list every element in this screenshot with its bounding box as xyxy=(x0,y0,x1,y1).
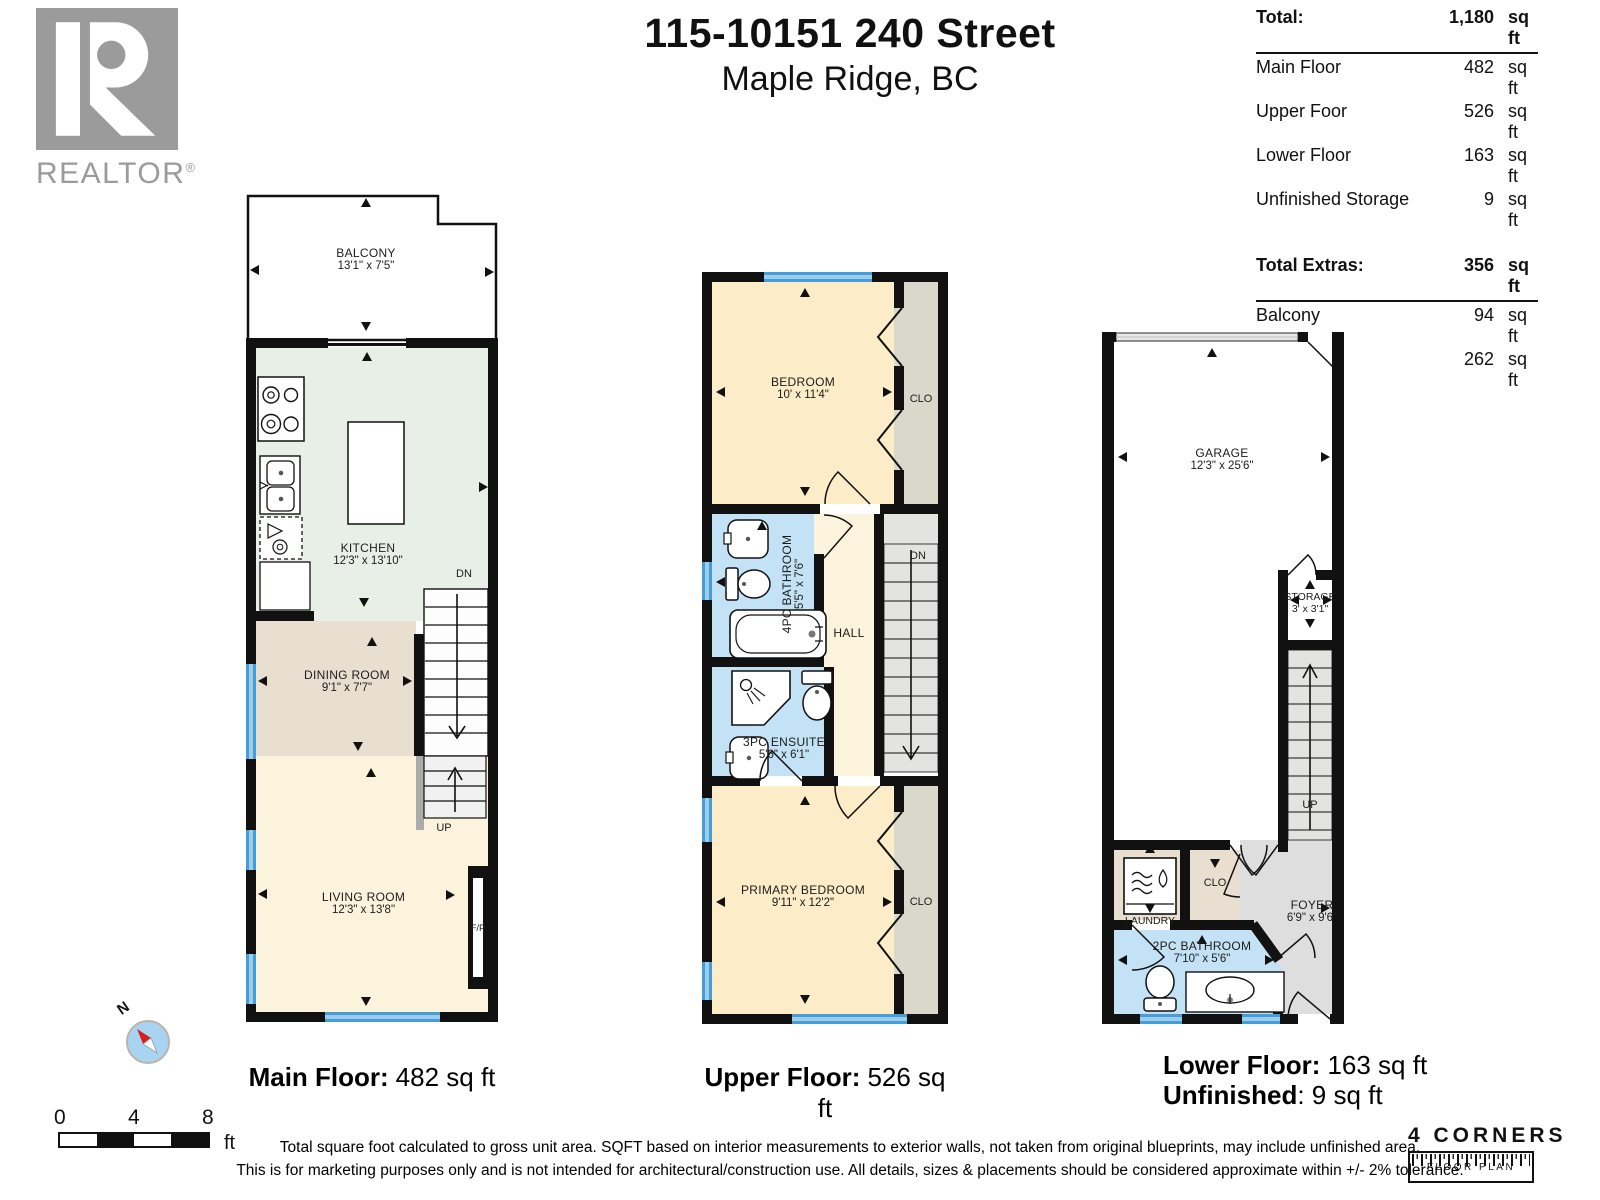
realtor-logo: REALTOR® xyxy=(36,8,206,191)
compass-icon xyxy=(124,1018,172,1066)
scale-numbers: 0 4 8 xyxy=(58,1106,298,1130)
ensuite-toilet-icon xyxy=(802,671,832,720)
table-row: Main Floor 482 sq ft xyxy=(1256,56,1538,100)
room-label-foyer: FOYER 6'9" x 9'6" xyxy=(1262,898,1362,926)
table-total-row: Total: 1,180 sq ft xyxy=(1256,6,1538,54)
vanity-sink-icon xyxy=(1186,972,1284,1012)
room-label-bathroom: 2PC BATHROOM 7'10" x 5'6" xyxy=(1122,939,1282,967)
lower-floor-caption: Lower Floor:163 sq ft Unfinished: 9 sq f… xyxy=(1163,1050,1427,1110)
brand-name: 4 CORNERS xyxy=(1408,1124,1534,1148)
stairs-up-label: UP xyxy=(1288,799,1332,812)
page-title: 115-10151 240 Street xyxy=(450,10,1250,57)
compass: N xyxy=(112,998,182,1074)
room-label-living: LIVING ROOM 12'3" x 13'8" xyxy=(261,890,466,918)
stairs-down xyxy=(884,544,938,772)
room-label-bedroom: BEDROOM 10' x 11'4" xyxy=(712,375,894,403)
toilet-icon xyxy=(1144,966,1176,1011)
main-floor-caption: Main Floor:482 sq ft xyxy=(246,1062,498,1093)
disclaimer-line-1: Total square foot calculated to gross un… xyxy=(170,1136,1530,1159)
realtor-wordmark: REALTOR® xyxy=(36,157,206,191)
ruler-icon: FLOOR PLAN xyxy=(1408,1151,1534,1183)
room-label-kitchen: KITCHEN 12'3" x 13'10" xyxy=(276,541,460,569)
laundry-label: LAUNDRY xyxy=(1109,915,1191,928)
room-label-balcony: BALCONY 13'1" x 7'5" xyxy=(276,246,456,274)
kitchen-island xyxy=(348,422,404,524)
compass-north-label: N xyxy=(114,998,133,1018)
upper-floor-caption: Upper Floor:526 sq ft xyxy=(702,1062,948,1124)
lower-floor-plan: GARAGE 12'3" x 25'6" STORAGE 3' x 3'1" U… xyxy=(1102,332,1344,1024)
total-label: Total: xyxy=(1256,7,1436,28)
table-row: Lower Floor 163 sq ft xyxy=(1256,144,1538,188)
header: 115-10151 240 Street Maple Ridge, BC xyxy=(450,10,1250,99)
main-floor-plan: BALCONY 13'1" x 7'5" KITCHEN 12'3" x 13'… xyxy=(246,194,498,1028)
room-label-ensuite: 3PC ENSUITE 5'6" x 6'1" xyxy=(714,735,854,763)
closet-label: CLO xyxy=(1191,877,1239,890)
room-label-storage: STORAGE 3' x 3'1" xyxy=(1281,591,1339,615)
table-row: Upper Foor 526 sq ft xyxy=(1256,100,1538,144)
room-label-garage: GARAGE 12'3" x 25'6" xyxy=(1114,446,1330,474)
page-subtitle: Maple Ridge, BC xyxy=(450,60,1250,99)
room-label-primary-bedroom: PRIMARY BEDROOM 9'11" x 12'2" xyxy=(712,883,894,911)
toilet-icon xyxy=(726,568,770,600)
room-label-bathroom: 4PC BATHROOM 5'5" x 7'6" xyxy=(780,509,808,659)
closet-label: CLO xyxy=(899,896,943,909)
room-label-dining: DINING ROOM 9'1" x 7'7" xyxy=(262,668,432,696)
hall-label: HALL xyxy=(814,626,884,640)
bathtub-icon xyxy=(730,610,826,658)
stairs-up-label: UP xyxy=(422,822,466,835)
counter xyxy=(260,562,310,610)
total-unit: sq ft xyxy=(1494,7,1538,49)
disclaimer: Total square foot calculated to gross un… xyxy=(170,1136,1530,1182)
disclaimer-line-2: This is for marketing purposes only and … xyxy=(170,1159,1530,1182)
table-row: Unfinished Storage 9 sq ft xyxy=(1256,188,1538,232)
floor-plan-sheet: REALTOR® 115-10151 240 Street Maple Ridg… xyxy=(0,0,1600,1200)
upper-floor-plan: BEDROOM 10' x 11'4" CLO 4PC BATHROOM 5'5… xyxy=(702,272,948,1024)
table-extras-row: Total Extras: 356 sq ft xyxy=(1256,254,1538,302)
stairs-dn-label: DN xyxy=(442,568,486,581)
closet-label: CLO xyxy=(899,393,943,406)
stove-icon xyxy=(258,377,304,441)
realtor-r-icon xyxy=(36,8,178,150)
kitchen-sink-icon xyxy=(260,456,300,514)
total-value: 1,180 xyxy=(1436,7,1494,28)
stairs-dn-label: DN xyxy=(896,550,940,563)
brand-tagline: FLOOR PLAN xyxy=(1410,1162,1532,1173)
four-corners-logo: 4 CORNERS FLOOR PLAN xyxy=(1408,1124,1534,1183)
fireplace-label: F/P xyxy=(458,923,498,934)
